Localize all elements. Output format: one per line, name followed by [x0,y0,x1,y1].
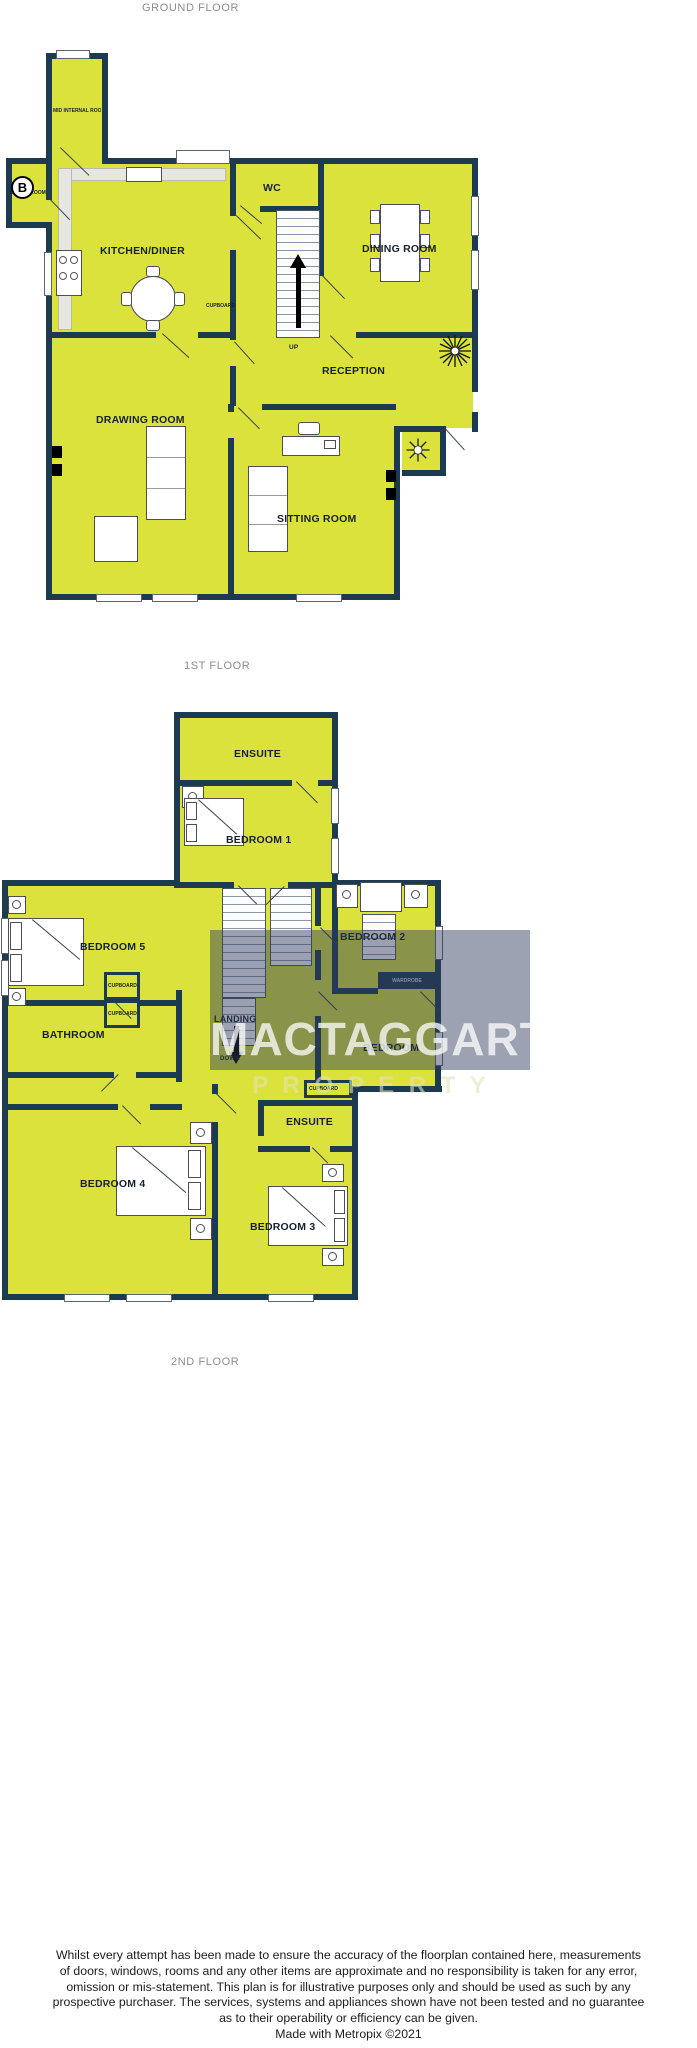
wall-segment [228,404,234,412]
chair-icon [146,320,160,331]
disclaimer-line: Whilst every attempt has been made to en… [0,1948,697,1964]
desk-chair-icon [298,422,320,435]
wall-segment [230,334,236,340]
boiler-icon: B [11,176,34,199]
label-dining-room: DINING ROOM [362,243,437,255]
label-wc: WC [263,182,281,194]
disclaimer: Whilst every attempt has been made to en… [0,1948,697,2043]
wall-segment [258,1100,352,1106]
label-mid-internal-room: MID INTERNAL ROOM [53,108,101,114]
window [331,788,339,824]
wall-segment [230,162,236,216]
wall-segment [52,332,156,338]
sink-bowl [342,890,351,899]
vanity-unit-icon [360,882,402,912]
hob-ring [70,272,78,280]
chair-icon [174,292,185,306]
window [64,1294,110,1302]
window [126,1294,172,1302]
chimney-notch [386,470,396,482]
wall-segment [258,1146,310,1152]
wall-segment [330,1146,352,1152]
watermark-name: MACTAGGART [210,1012,532,1066]
disclaimer-line: prospective purchaser. The services, sys… [0,1995,697,2011]
sink-bowl [411,890,420,899]
wall-segment [352,1088,358,1300]
window [471,196,479,236]
lamp [196,1128,205,1137]
wall-segment [2,1072,114,1078]
cupboard-box: CUPBOARD [104,972,140,1000]
pillow [188,1182,201,1210]
lamp [328,1168,337,1177]
lamp [328,1252,337,1261]
wall-segment [2,1104,118,1110]
pillow [334,1190,345,1214]
armchair-icon [94,516,138,562]
sunburst-icon [438,334,472,368]
wall-segment [174,712,338,718]
window [44,252,52,296]
label-ensuite-top: ENSUITE [234,748,281,760]
disclaimer-line: of doors, windows, rooms and any other i… [0,1964,697,1980]
wall-segment [150,1104,182,1110]
window [152,594,198,602]
chimney-notch [386,488,396,500]
window [296,594,342,602]
wall-segment [394,426,400,600]
label-bedroom3: BEDROOM 3 [250,1221,315,1233]
label-bedroom5: BEDROOM 5 [80,941,145,953]
window [268,1294,314,1302]
pillow [10,922,22,950]
pillow [10,954,22,982]
hob-ring [59,256,67,264]
up-arrow-icon [296,266,301,328]
wall-segment [315,886,321,926]
chair-icon [420,210,430,224]
wall-segment [228,438,234,596]
label-up: UP [289,344,298,351]
wall-segment [176,990,182,1082]
window [471,250,479,290]
label-drawing-room: DRAWING ROOM [96,414,185,426]
plant-icon [404,436,432,464]
wall-segment [102,158,478,164]
wall-segment [472,412,478,432]
credit-line: Made with Metropix ©2021 [0,2027,697,2043]
lamp [12,992,21,1001]
wall-segment [2,880,180,886]
label-bathroom: BATHROOM [42,1029,105,1041]
wall-segment [102,53,108,163]
sink-icon [126,167,162,182]
caption-ground-floor: GROUND FLOOR [142,2,239,14]
label-reception: RECEPTION [322,365,385,377]
chimney-notch [52,464,62,476]
wall-segment [230,366,236,406]
watermark-subtitle: P R O P E R T Y [210,1072,532,1100]
window-bay [176,150,230,164]
caption-first-floor: 1ST FLOOR [184,660,250,672]
lamp [12,900,21,909]
label-cupboard: CUPBOARD [108,983,137,989]
label-kitchen-diner: KITCHEN/DINER [100,245,185,257]
window [56,50,90,59]
up-arrow-head-icon [290,254,306,268]
window [331,838,339,874]
label-cupboard: CUPBOARD [108,1011,137,1017]
round-table-icon [130,276,176,322]
label-ensuite-bottom: ENSUITE [286,1116,333,1128]
wall-segment [258,1100,264,1136]
disclaimer-line: as to their operability or efficiency ca… [0,2011,697,2027]
chair-icon [146,266,160,277]
wall-segment [6,158,50,164]
wall-segment [46,53,52,163]
hob-ring [59,272,67,280]
door-arc [444,427,465,450]
pillow [186,802,197,820]
chair-icon [121,292,132,306]
label-bedroom1: BEDROOM 1 [226,834,291,846]
label-sitting-room: SITTING ROOM [277,513,356,525]
kitchen-counter [58,168,72,330]
chimney-notch [52,446,62,458]
sofa-icon [248,466,288,552]
wall-segment [318,780,335,786]
wall-segment [440,426,446,476]
window [96,594,142,602]
chair-icon [370,210,380,224]
label-cupboard: CUPBOARD [206,303,235,309]
cupboard-box: CUPBOARD [104,1000,140,1028]
pillow [186,824,197,842]
disclaimer-line: omission or mis-statement. This plan is … [0,1980,697,1996]
floorplan-page: GROUND FLOOR 1ST FLOOR 2ND FLOOR [0,0,697,2048]
lamp [196,1224,205,1233]
monitor-icon [324,440,336,449]
wall-segment [402,470,446,476]
wall-segment [230,250,236,338]
wall-segment [198,332,234,338]
wall-segment [174,712,180,888]
chair-icon [420,258,430,272]
pillow [334,1218,345,1242]
pillow [188,1150,201,1178]
wall-segment [262,404,396,410]
caption-second-floor: 2ND FLOOR [171,1356,239,1368]
label-bedroom4: BEDROOM 4 [80,1178,145,1190]
wall-segment [212,1122,218,1300]
wall-segment [398,426,442,432]
chair-icon [370,258,380,272]
sofa-icon [146,426,186,520]
hob-ring [70,256,78,264]
